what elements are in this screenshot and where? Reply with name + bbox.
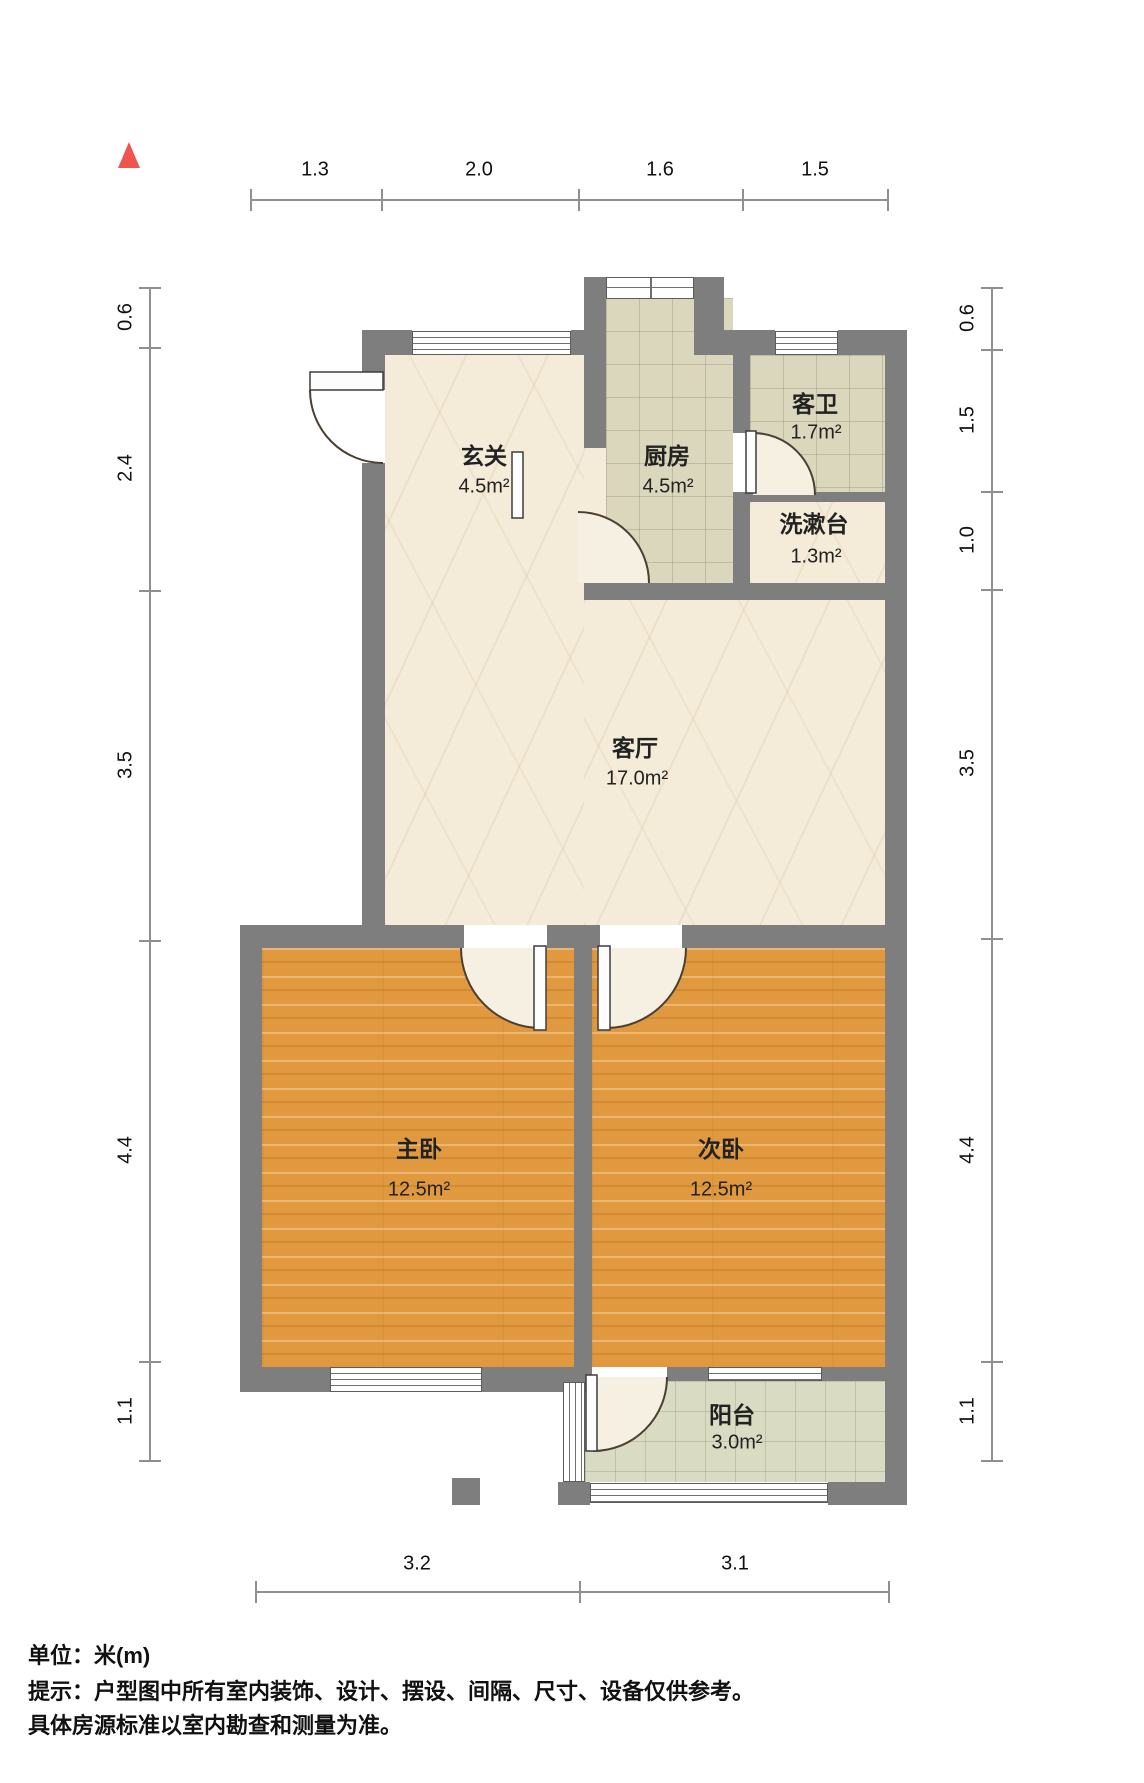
dim-line-right [991,287,993,1462]
dim-label-right: 1.5 [957,406,980,434]
dim-label-top: 1.6 [646,159,674,182]
dim-tick [887,189,889,211]
room-area-kitchen: 4.5m² [642,476,693,499]
room-area-washstand: 1.3m² [790,546,841,569]
footer-tip-line1: 提示：户型图中所有室内装饰、设计、摆设、间隔、尺寸、设备仅供参考。 [28,1674,754,1706]
dim-tick [250,189,252,211]
room-label-kitchen: 厨房 [644,437,690,471]
dim-label-left: 0.6 [115,303,138,331]
dim-label-top: 1.5 [801,159,829,182]
window-bathroom [775,331,838,355]
dim-label-right: 4.4 [957,1136,980,1164]
wall [828,1482,907,1505]
footer-tip-line2: 具体房源标准以室内勘查和测量为准。 [28,1708,402,1740]
entry-door-wedge [310,390,383,463]
dim-tick [981,349,1003,351]
dim-tick [981,287,1003,289]
dim-label-bottom: 3.2 [403,1553,431,1576]
wall [667,1367,708,1381]
wall-stub [452,1478,480,1505]
wall [240,925,464,948]
room-area-second-bedroom: 12.5m² [690,1179,752,1202]
wall [733,502,750,583]
wall [733,355,750,433]
dim-tick [255,1581,257,1603]
wall [822,1367,885,1381]
dim-tick [139,347,161,349]
room-label-entry: 玄关 [461,437,507,471]
wall [574,948,592,1367]
window-kitchen [606,277,694,299]
room-label-living: 客厅 [612,729,658,763]
dim-label-right: 3.5 [957,749,980,777]
room-label-second-bedroom: 次卧 [698,1130,744,1164]
dim-tick [981,491,1003,493]
room-area-living: 17.0m² [606,768,668,791]
dim-label-right: 1.0 [957,526,980,554]
wall [724,330,775,355]
wall [885,330,907,1505]
dim-tick [139,1460,161,1462]
wall [694,277,724,355]
dim-label-left: 4.4 [115,1136,138,1164]
window-balcony-left [563,1382,585,1482]
dim-label-left: 3.5 [115,751,138,779]
dim-label-top: 2.0 [465,159,493,182]
wall [547,925,600,948]
dim-label-right: 0.6 [957,304,980,332]
room-label-bathroom: 客卫 [792,385,838,419]
wall [362,463,385,948]
room-label-washstand: 洗漱台 [780,505,849,539]
dim-tick [981,1361,1003,1363]
room-area-master-bedroom: 12.5m² [388,1179,450,1202]
dim-tick [981,1460,1003,1462]
room-area-entry: 4.5m² [458,476,509,499]
wall [240,925,262,1392]
wall [240,1367,330,1392]
wall [584,583,907,600]
dim-label-top: 1.3 [301,159,329,182]
dim-label-bottom: 3.1 [721,1553,749,1576]
footer-unit: 单位：米(m) [28,1638,150,1670]
dim-tick [742,189,744,211]
dim-label-left: 1.1 [115,1397,138,1425]
wall [584,355,606,448]
room-label-balcony: 阳台 [709,1396,755,1430]
room-label-master-bedroom: 主卧 [396,1130,442,1164]
dim-line-bottom [255,1591,890,1593]
dim-tick [139,940,161,942]
room-area-balcony: 3.0m² [711,1432,762,1455]
dim-tick [139,1361,161,1363]
wall [362,330,385,390]
dim-tick [981,589,1003,591]
window-second-bedroom-balcony [708,1367,822,1381]
dim-label-right: 1.1 [957,1397,980,1425]
room-area-bathroom: 1.7m² [790,422,841,445]
dim-tick [139,287,161,289]
wall [733,492,907,502]
wall [563,1367,588,1382]
entry-door-arc [310,390,383,463]
dim-tick [139,590,161,592]
dim-label-left: 2.4 [115,454,138,482]
window-entry [412,331,571,355]
dim-tick [579,1581,581,1603]
floor-kitchen-doorway [584,448,606,583]
wall [682,925,885,948]
window-master-bedroom [330,1367,482,1392]
north-arrow-icon [118,142,140,168]
dim-tick [578,189,580,211]
wall [584,277,606,355]
wall [571,330,584,355]
dim-tick [981,938,1003,940]
dim-tick [888,1581,890,1603]
dim-line-top [250,199,888,201]
dim-tick [381,189,383,211]
window-balcony-bottom [590,1483,828,1503]
floorplan-canvas: 玄关 4.5m² 厨房 4.5m² 客卫 1.7m² 洗漱台 1.3m² 客厅 … [0,0,1144,1783]
dim-line-left [149,287,151,1462]
wall [558,1482,590,1505]
